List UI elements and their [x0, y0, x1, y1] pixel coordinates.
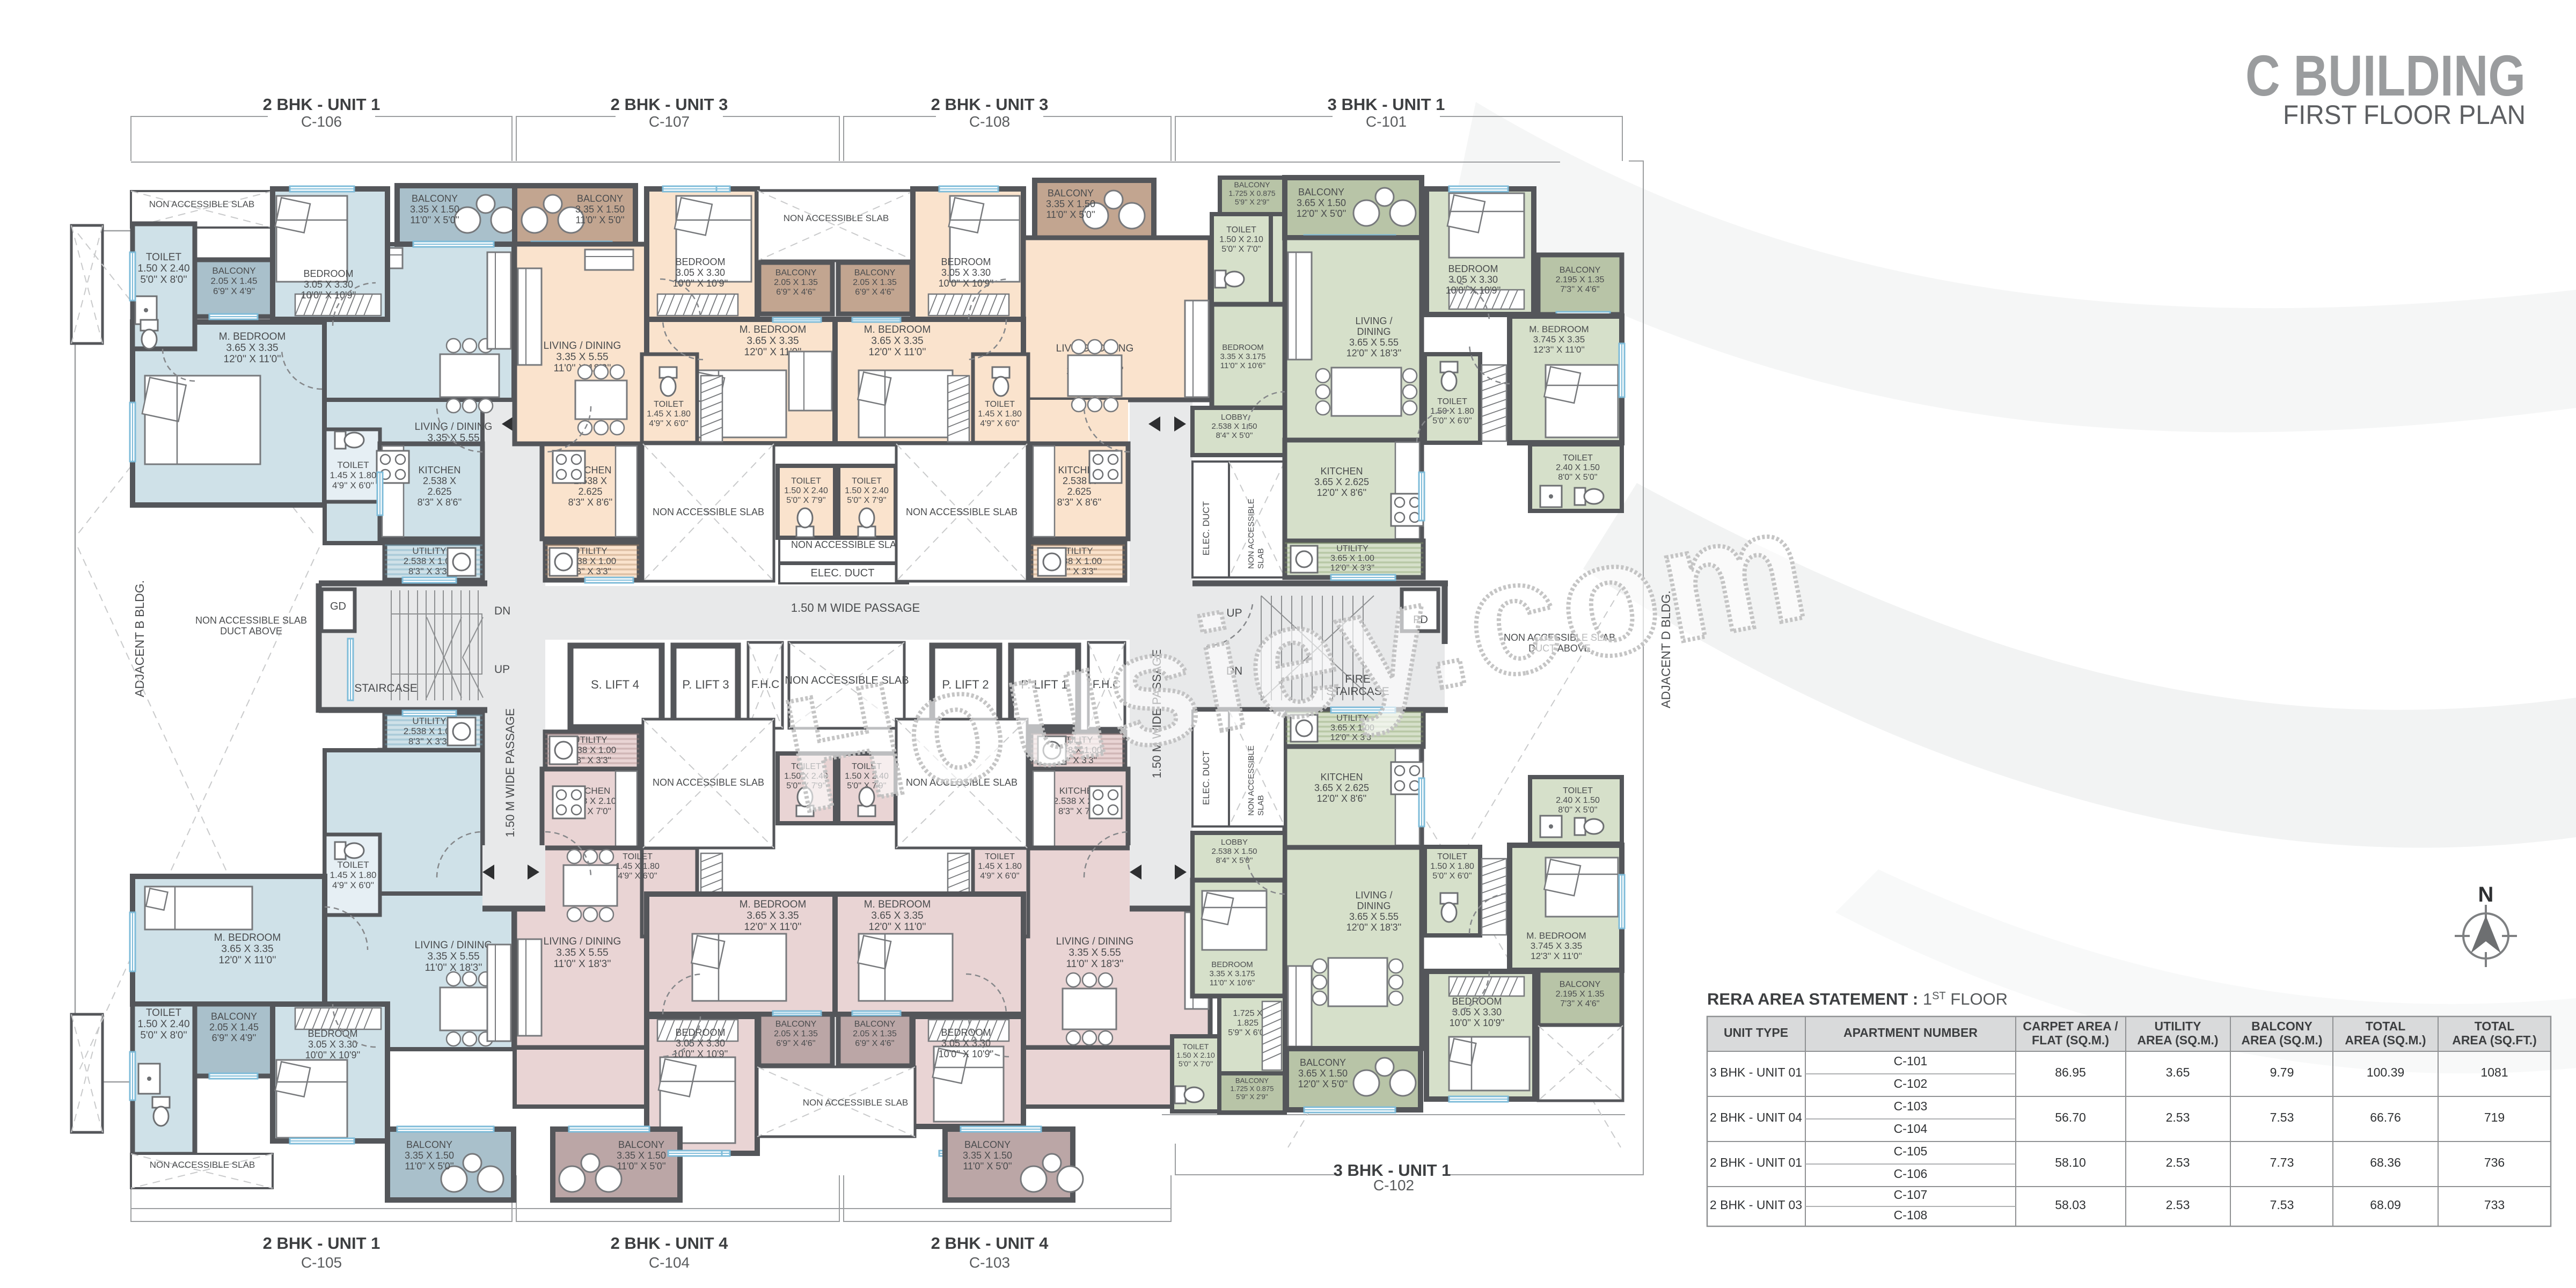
svg-text:BEDROOM3.35 X 3.17511'0'' X 10: BEDROOM3.35 X 3.17511'0'' X 10'6'' — [1220, 343, 1265, 370]
svg-text:C-102: C-102 — [1373, 1177, 1414, 1194]
svg-text:N: N — [2478, 883, 2494, 906]
svg-text:C-107: C-107 — [649, 113, 690, 130]
svg-text:NON ACCESSIBLE SLAB: NON ACCESSIBLE SLAB — [803, 1097, 909, 1108]
svg-text:2.53: 2.53 — [2166, 1155, 2190, 1169]
svg-text:BALCONY2.05 X 1.356'9'' X 4'6': BALCONY2.05 X 1.356'9'' X 4'6'' — [774, 268, 818, 297]
svg-text:BALCONY2.195 X 1.357'3'' X 4'6: BALCONY2.195 X 1.357'3'' X 4'6'' — [1556, 266, 1605, 294]
svg-text:2 BHK - UNIT 4: 2 BHK - UNIT 4 — [931, 1234, 1049, 1253]
svg-text:KITCHEN3.65 X 2.62512'0'' X 8': KITCHEN3.65 X 2.62512'0'' X 8'6'' — [1314, 772, 1369, 804]
svg-text:C-104: C-104 — [649, 1254, 690, 1271]
svg-text:UP: UP — [494, 663, 510, 676]
svg-text:C-104: C-104 — [1894, 1122, 1928, 1136]
svg-text:M. BEDROOM3.745 X 3.3512'3'' X: M. BEDROOM3.745 X 3.3512'3'' X 11'0'' — [1529, 324, 1589, 355]
svg-text:FIRST FLOOR PLAN: FIRST FLOOR PLAN — [2283, 100, 2526, 130]
svg-text:86.95: 86.95 — [2055, 1065, 2086, 1079]
svg-text:BEDROOM3.05 X 3.3010'0'' X 10': BEDROOM3.05 X 3.3010'0'' X 10'9'' — [939, 257, 994, 289]
svg-text:1.50 M WIDE PASSAGE: 1.50 M WIDE PASSAGE — [791, 601, 920, 614]
svg-text:STAIRCASE: STAIRCASE — [354, 682, 417, 694]
svg-text:NON ACCESSIBLE SLAB: NON ACCESSIBLE SLAB — [791, 539, 903, 550]
svg-text:BALCONY1.725 X 0.8755'9'' X 2': BALCONY1.725 X 0.8755'9'' X 2'9'' — [1228, 180, 1275, 206]
svg-text:2 BHK - UNIT 3: 2 BHK - UNIT 3 — [931, 95, 1049, 114]
svg-text:BALCONY2.05 X 1.356'9'' X 4'6': BALCONY2.05 X 1.356'9'' X 4'6'' — [774, 1020, 818, 1048]
svg-text:C-101: C-101 — [1894, 1054, 1928, 1068]
svg-text:2 BHK - UNIT 04: 2 BHK - UNIT 04 — [1710, 1110, 1802, 1124]
svg-text:BALCONYAREA (SQ.M.): BALCONYAREA (SQ.M.) — [2241, 1019, 2322, 1047]
svg-text:C-103: C-103 — [1894, 1099, 1928, 1113]
svg-text:7.73: 7.73 — [2270, 1155, 2294, 1169]
svg-text:BALCONY2.05 X 1.356'9'' X 4'6': BALCONY2.05 X 1.356'9'' X 4'6'' — [853, 1020, 897, 1048]
svg-text:100.39: 100.39 — [2367, 1065, 2404, 1079]
svg-text:C-108: C-108 — [1894, 1208, 1928, 1222]
svg-text:7.53: 7.53 — [2270, 1198, 2294, 1212]
svg-text:3.65: 3.65 — [2166, 1065, 2190, 1079]
svg-text:GD: GD — [330, 601, 346, 612]
svg-text:736: 736 — [2484, 1155, 2505, 1169]
svg-text:RERA AREA STATEMENT : 1ST FLOO: RERA AREA STATEMENT : 1ST FLOOR — [1707, 990, 2008, 1008]
svg-text:BALCONY2.195 X 1.357'3'' X 4'6: BALCONY2.195 X 1.357'3'' X 4'6'' — [1556, 980, 1605, 1008]
svg-text:2 BHK - UNIT 4: 2 BHK - UNIT 4 — [611, 1234, 729, 1253]
svg-text:DN: DN — [494, 605, 510, 617]
svg-text:BALCONY2.05 X 1.456'9'' X 4'9': BALCONY2.05 X 1.456'9'' X 4'9'' — [209, 1011, 259, 1043]
svg-text:C-102: C-102 — [1894, 1077, 1928, 1091]
svg-text:S. LIFT 4: S. LIFT 4 — [591, 678, 639, 691]
svg-text:BALCONY3.35 X 1.5011'0'' X 5'0: BALCONY3.35 X 1.5011'0'' X 5'0'' — [963, 1139, 1012, 1172]
svg-text:BEDROOM3.05 X 3.3010'0'' X 10': BEDROOM3.05 X 3.3010'0'' X 10'9'' — [939, 1027, 994, 1059]
svg-text:BALCONY3.35 X 1.5011'0'' X 5'0: BALCONY3.35 X 1.5011'0'' X 5'0'' — [575, 193, 625, 225]
svg-text:9.79: 9.79 — [2270, 1065, 2294, 1079]
svg-text:C-105: C-105 — [1894, 1144, 1928, 1158]
svg-text:NON ACCESSIBLE SLAB: NON ACCESSIBLE SLAB — [653, 777, 764, 788]
svg-text:ELEC. DUCT: ELEC. DUCT — [1201, 501, 1211, 555]
svg-text:C-106: C-106 — [301, 113, 342, 130]
svg-text:BEDROOM3.05 X 3.3010'0'' X 10': BEDROOM3.05 X 3.3010'0'' X 10'9'' — [305, 1028, 361, 1060]
svg-text:733: 733 — [2484, 1198, 2505, 1212]
svg-text:SLAB: SLAB — [1256, 795, 1265, 816]
svg-text:NON ACCESSIBLE: NON ACCESSIBLE — [1247, 499, 1256, 569]
svg-text:NON ACCESSIBLE SLAB: NON ACCESSIBLE SLAB — [653, 507, 764, 517]
svg-text:BALCONY2.05 X 1.456'9'' X 4'9': BALCONY2.05 X 1.456'9'' X 4'9'' — [211, 266, 258, 296]
svg-text:C-108: C-108 — [969, 113, 1010, 130]
svg-text:58.03: 58.03 — [2055, 1198, 2086, 1212]
svg-text:C BUILDING: C BUILDING — [2245, 43, 2526, 108]
svg-text:C-107: C-107 — [1894, 1188, 1928, 1202]
svg-text:C-105: C-105 — [301, 1254, 342, 1271]
svg-text:C-106: C-106 — [1894, 1167, 1928, 1181]
svg-text:NON ACCESSIBLE SLAB: NON ACCESSIBLE SLAB — [150, 1160, 255, 1170]
svg-text:66.76: 66.76 — [2370, 1110, 2401, 1124]
svg-text:2.53: 2.53 — [2166, 1110, 2190, 1124]
svg-text:1.50 M WIDE PASSAGE: 1.50 M WIDE PASSAGE — [503, 708, 517, 837]
svg-text:2.53: 2.53 — [2166, 1198, 2190, 1212]
svg-text:2 BHK - UNIT 01: 2 BHK - UNIT 01 — [1710, 1155, 1802, 1169]
svg-text:68.36: 68.36 — [2370, 1155, 2401, 1169]
svg-text:BALCONY3.35 X 1.5011'0'' X 5'0: BALCONY3.35 X 1.5011'0'' X 5'0'' — [410, 193, 459, 225]
svg-text:BEDROOM3.05 X 3.3010'0'' X 10': BEDROOM3.05 X 3.3010'0'' X 10'9'' — [301, 268, 356, 301]
svg-text:2 BHK - UNIT 1: 2 BHK - UNIT 1 — [263, 1234, 380, 1253]
svg-text:BALCONY3.65 X 1.5012'0'' X 5'0: BALCONY3.65 X 1.5012'0'' X 5'0'' — [1298, 1057, 1348, 1089]
svg-text:BALCONY1.725 X 0.8755'9'' X 2': BALCONY1.725 X 0.8755'9'' X 2'9'' — [1231, 1077, 1274, 1101]
svg-text:M. BEDROOM3.745 X 3.3512'3'' X: M. BEDROOM3.745 X 3.3512'3'' X 11'0'' — [1526, 931, 1586, 961]
svg-text:3 BHK - UNIT 1: 3 BHK - UNIT 1 — [1328, 95, 1445, 114]
svg-text:BALCONY3.65 X 1.5012'0'' X 5'0: BALCONY3.65 X 1.5012'0'' X 5'0'' — [1297, 187, 1346, 219]
svg-text:NON ACCESSIBLE SLAB: NON ACCESSIBLE SLAB — [906, 507, 1018, 517]
svg-text:56.70: 56.70 — [2055, 1110, 2086, 1124]
svg-text:M. BEDROOM3.65 X 3.3512'0'' X: M. BEDROOM3.65 X 3.3512'0'' X 11'0'' — [740, 899, 807, 933]
svg-text:NON ACCESSIBLE SLAB: NON ACCESSIBLE SLAB — [149, 199, 255, 209]
svg-text:C-101: C-101 — [1366, 113, 1407, 130]
svg-text:68.09: 68.09 — [2370, 1198, 2401, 1212]
svg-text:BEDROOM3.05 X 3.3010'0'' X 10': BEDROOM3.05 X 3.3010'0'' X 10'9'' — [673, 1027, 728, 1059]
svg-text:UNIT TYPE: UNIT TYPE — [1724, 1026, 1788, 1040]
svg-text:BALCONY2.05 X 1.356'9'' X 4'6': BALCONY2.05 X 1.356'9'' X 4'6'' — [853, 268, 897, 297]
svg-text:ELEC. DUCT: ELEC. DUCT — [811, 567, 875, 579]
svg-text:BALCONY3.35 X 1.5011'0'' X 5'0: BALCONY3.35 X 1.5011'0'' X 5'0'' — [405, 1139, 454, 1172]
svg-text:2 BHK - UNIT 1: 2 BHK - UNIT 1 — [263, 95, 380, 114]
svg-text:BALCONY3.35 X 1.5011'0'' X 5'0: BALCONY3.35 X 1.5011'0'' X 5'0'' — [1046, 188, 1095, 220]
svg-text:58.10: 58.10 — [2055, 1155, 2086, 1169]
svg-text:719: 719 — [2484, 1110, 2505, 1124]
svg-text:NON ACCESSIBLE SLAB: NON ACCESSIBLE SLAB — [784, 213, 889, 223]
svg-text:2 BHK - UNIT 03: 2 BHK - UNIT 03 — [1710, 1198, 1802, 1212]
svg-text:ADJACENT B BLDG.: ADJACENT B BLDG. — [133, 580, 147, 697]
svg-text:M. BEDROOM3.65 X 3.3512'0'' X: M. BEDROOM3.65 X 3.3512'0'' X 11'0'' — [219, 331, 286, 365]
svg-text:CARPET AREA /FLAT (SQ.M.): CARPET AREA /FLAT (SQ.M.) — [2023, 1019, 2118, 1047]
svg-text:BALCONY3.35 X 1.5011'0'' X 5'0: BALCONY3.35 X 1.5011'0'' X 5'0'' — [617, 1139, 666, 1172]
svg-text:SLAB: SLAB — [1256, 548, 1265, 569]
svg-text:APARTMENT NUMBER: APARTMENT NUMBER — [1843, 1026, 1978, 1040]
svg-text:C-103: C-103 — [969, 1254, 1010, 1271]
svg-text:2 BHK - UNIT 3: 2 BHK - UNIT 3 — [611, 95, 728, 114]
svg-text:7.53: 7.53 — [2270, 1110, 2294, 1124]
svg-text:M. BEDROOM3.65 X 3.3512'0'' X: M. BEDROOM3.65 X 3.3512'0'' X 11'0'' — [214, 932, 281, 966]
svg-text:BEDROOM3.05 X 3.3010'0'' X 10': BEDROOM3.05 X 3.3010'0'' X 10'9'' — [673, 257, 728, 289]
svg-text:BEDROOM3.05 X 3.3010'0'' X 10': BEDROOM3.05 X 3.3010'0'' X 10'9'' — [1446, 264, 1501, 296]
svg-text:BEDROOM3.35 X 3.17511'0'' X 10: BEDROOM3.35 X 3.17511'0'' X 10'6'' — [1209, 960, 1255, 987]
svg-text:M. BEDROOM3.65 X 3.3512'0'' X: M. BEDROOM3.65 X 3.3512'0'' X 11'0'' — [864, 899, 931, 933]
svg-text:M. BEDROOM3.65 X 3.3512'0'' X: M. BEDROOM3.65 X 3.3512'0'' X 11'0'' — [864, 324, 931, 358]
svg-text:1081: 1081 — [2480, 1065, 2508, 1079]
svg-text:P. LIFT 3: P. LIFT 3 — [682, 678, 729, 691]
svg-text:3 BHK - UNIT 01: 3 BHK - UNIT 01 — [1710, 1065, 1802, 1079]
svg-text:KITCHEN3.65 X 2.62512'0'' X 8': KITCHEN3.65 X 2.62512'0'' X 8'6'' — [1314, 466, 1369, 498]
